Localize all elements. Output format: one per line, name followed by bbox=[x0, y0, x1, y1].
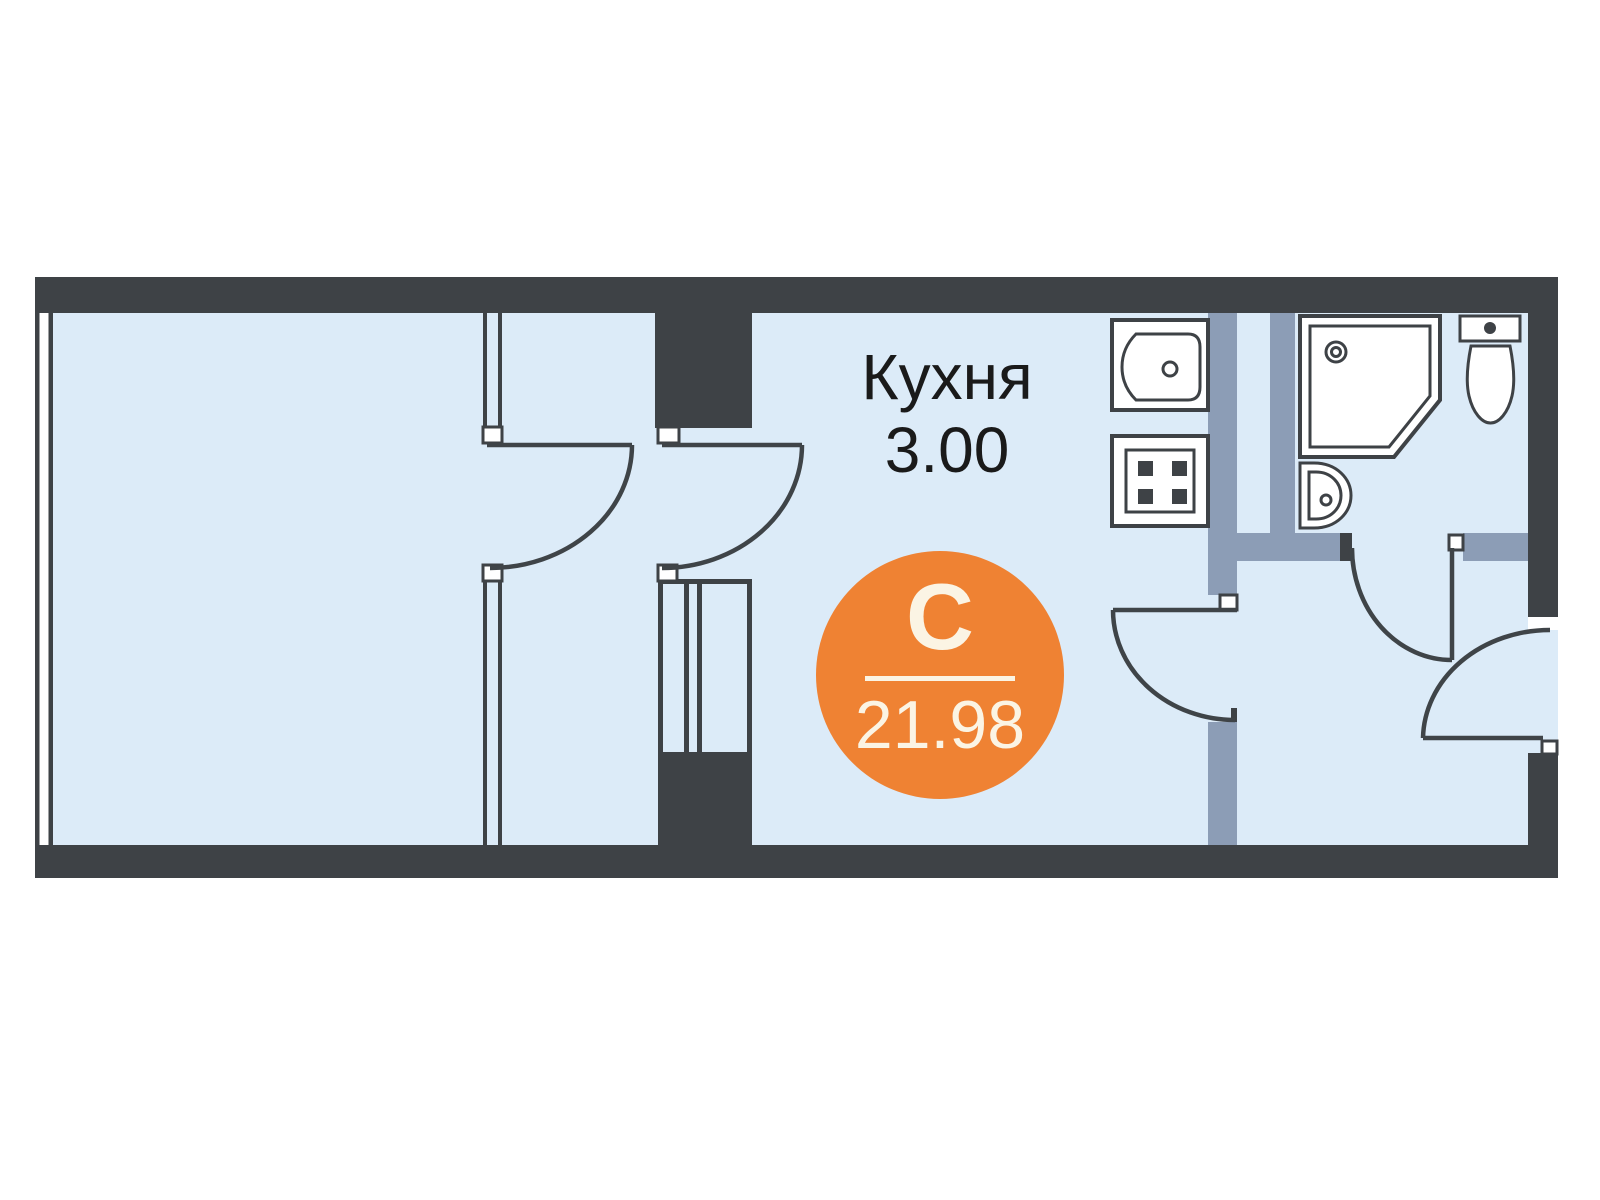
shaft-mid-line bbox=[684, 584, 689, 752]
kitchen-name: Кухня bbox=[747, 341, 1147, 414]
door-jamb bbox=[1542, 741, 1557, 754]
stove-burner bbox=[1172, 489, 1187, 504]
bathroom-bottom-wall-right bbox=[1463, 533, 1528, 561]
shaft-mid-line bbox=[697, 584, 702, 752]
partition-line bbox=[498, 313, 502, 427]
kitchen-right-wall-upper bbox=[1208, 313, 1237, 595]
unit-type-letter: С bbox=[816, 570, 1064, 664]
stove-burner bbox=[1138, 489, 1153, 504]
wall-room-divider-top bbox=[655, 313, 752, 428]
window-left bbox=[35, 313, 53, 845]
wall-right-upper bbox=[1528, 313, 1558, 617]
partition-line bbox=[498, 581, 502, 845]
partition-line bbox=[483, 313, 487, 427]
wall-right-lower bbox=[1528, 753, 1558, 845]
partition-line bbox=[483, 581, 487, 845]
door-jamb bbox=[483, 427, 502, 443]
wall-shaft-base bbox=[658, 752, 752, 845]
floor-plan-page: Кухня 3.00 С 21.98 bbox=[0, 0, 1600, 1200]
wall-bottom bbox=[35, 845, 1558, 878]
door-jamb bbox=[658, 427, 679, 443]
bathroom-bottom-wall-left bbox=[1237, 533, 1340, 561]
toilet-bowl bbox=[1467, 346, 1513, 423]
kitchen-area-value: 3.00 bbox=[747, 414, 1147, 487]
kitchen-right-wall-lower bbox=[1208, 722, 1237, 845]
total-area-value: 21.98 bbox=[816, 691, 1064, 759]
shaft-right-line bbox=[747, 584, 752, 752]
unit-area-badge: С 21.98 bbox=[816, 551, 1064, 799]
wall-top bbox=[35, 277, 1558, 313]
door-jamb bbox=[1449, 535, 1463, 550]
badge-divider-line bbox=[865, 676, 1015, 681]
window-outer-line bbox=[35, 313, 40, 845]
stove-burner bbox=[1172, 461, 1187, 476]
shaft-left-line bbox=[658, 584, 663, 752]
kitchen-room-label: Кухня 3.00 bbox=[747, 341, 1147, 487]
window-inner-line bbox=[49, 313, 54, 845]
bathroom-left-wall bbox=[1270, 313, 1295, 533]
toilet-button bbox=[1484, 322, 1496, 334]
floor-plan-drawing bbox=[0, 0, 1600, 1200]
